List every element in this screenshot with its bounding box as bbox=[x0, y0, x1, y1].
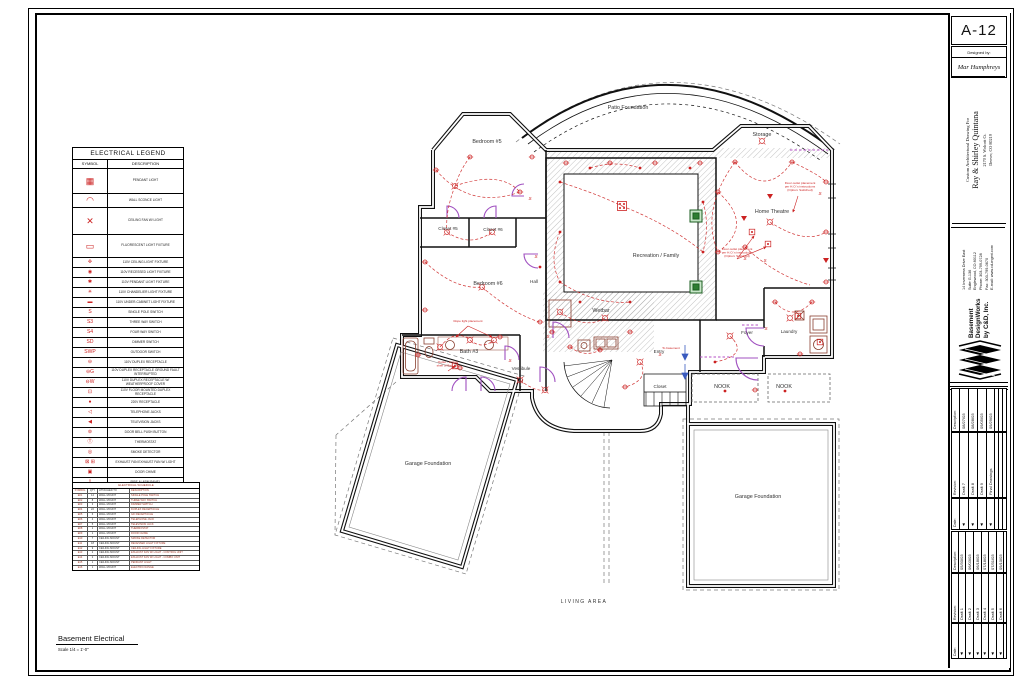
annotation-text: Floor outlet placementper H.O.'s instruc… bbox=[785, 181, 816, 192]
revision-entry: 07/31/03 bbox=[989, 532, 997, 572]
schedule-cell: WALL MOUNT bbox=[98, 513, 130, 517]
wire-run bbox=[770, 222, 826, 237]
legend-symbol-icon: ⊖W bbox=[73, 378, 108, 387]
room-label: Bath #3 bbox=[460, 349, 479, 355]
company-address-block: 14 Inverness Drive EastSuite G-136Englew… bbox=[953, 230, 1005, 290]
symbol-rc bbox=[537, 320, 543, 324]
legend-row: S3THREE WAY SWITCH bbox=[73, 318, 183, 328]
designer-name: Mar Humphreys bbox=[951, 57, 1007, 78]
wire-run bbox=[560, 182, 622, 206]
room-label: Wetbar bbox=[592, 308, 609, 314]
symbol-rl bbox=[784, 390, 787, 393]
schedule-cell: CEILING MOUNT bbox=[98, 542, 130, 546]
schedule-cell: 2 bbox=[88, 556, 98, 560]
schedule-cell: E08 bbox=[73, 527, 88, 531]
door-swing bbox=[484, 206, 496, 218]
revision-entry: Draft 8 bbox=[969, 433, 978, 497]
legend-symbol-icon: S bbox=[73, 308, 108, 317]
recessed-light-icon bbox=[539, 266, 542, 269]
legend-symbol-icon: ▭ bbox=[73, 235, 108, 257]
sheet-number: A-12 bbox=[951, 16, 1007, 45]
ceiling-light-icon bbox=[760, 139, 765, 144]
revision-entry: ◄ bbox=[982, 624, 990, 658]
revision-entry: Draft 1 bbox=[959, 574, 967, 622]
jack-icon bbox=[823, 258, 829, 263]
schedule-col-header: SYMBOL bbox=[73, 489, 88, 493]
symbol-rc bbox=[467, 155, 473, 159]
drawing-scale: Scale 1/4 = 1'-0" bbox=[56, 647, 216, 652]
legend-row: ◠WALL SCONCE LIGHT bbox=[73, 194, 183, 208]
revision-entry: ◄ bbox=[960, 499, 969, 529]
legend-description: 110V DUPLEX RECEPTACLE GROUND FAULT INTE… bbox=[108, 368, 183, 377]
schedule-cell: WALL MOUNT bbox=[98, 518, 130, 522]
schedule-cell: PENDANT LIGHT bbox=[130, 561, 199, 565]
electrical-legend: ELECTRICAL LEGEND SYMBOL DESCRIPTION ▦PE… bbox=[72, 147, 184, 498]
symbol-sw: S bbox=[546, 334, 549, 339]
legend-description: DOOR BELL PUSH BUTTON bbox=[108, 428, 183, 437]
revision-entry: ◄ bbox=[966, 624, 974, 658]
symbol-sw: S bbox=[763, 258, 766, 263]
legend-description: 110V UNDER-CABINET LIGHT FIXTURE bbox=[108, 298, 183, 307]
schedule-cell: RECESSED LIGHT FIXTURE bbox=[130, 542, 199, 546]
annotation-text: To basement bbox=[662, 346, 680, 350]
schedule-cell: E04 bbox=[73, 508, 88, 512]
schedule-cell: DIMMER SWITCH bbox=[130, 503, 199, 507]
sheet-page: { "colors":{"electrical_red":"#cc2222","… bbox=[0, 0, 1024, 683]
revision-entry: 09/10/03 bbox=[997, 532, 1005, 572]
room-label: Vestibule bbox=[512, 366, 531, 371]
legend-row: ▬110V UNDER-CABINET LIGHT FIXTURE bbox=[73, 298, 183, 308]
revision-entry: 05/30/03 bbox=[959, 532, 967, 572]
legend-symbol-icon: ◎ bbox=[73, 448, 108, 457]
schedule-cell: E13 bbox=[73, 551, 88, 555]
schedule-cell: 7 bbox=[88, 537, 98, 541]
revision-entry bbox=[1003, 389, 1006, 431]
recessed-light-icon bbox=[784, 390, 787, 393]
legend-symbol-icon: ⊖ bbox=[73, 358, 108, 367]
annotation-text: Outlet - bottomshelf of Bed Cab bbox=[437, 360, 460, 367]
legend-col-description: DESCRIPTION bbox=[108, 160, 183, 168]
legend-row: S4FOUR WAY SWITCH bbox=[73, 328, 183, 338]
door-swing bbox=[540, 367, 555, 382]
company-name-line: DesignWorks bbox=[975, 292, 982, 338]
revision-entry: Draft 6 bbox=[997, 574, 1005, 622]
schedule-cell: WALL MOUNT bbox=[98, 503, 130, 507]
legend-symbol-icon: SD bbox=[73, 338, 108, 347]
schedule-cell: E10 bbox=[73, 537, 88, 541]
symbol-tri bbox=[741, 216, 747, 221]
wire-run bbox=[520, 380, 545, 390]
legend-symbol-icon: ▬ bbox=[73, 298, 108, 307]
legend-row: ▣DOOR CHIME bbox=[73, 468, 183, 478]
symbol-rc bbox=[622, 385, 628, 389]
symbol-rc bbox=[732, 160, 738, 164]
jack-icon bbox=[741, 216, 747, 221]
legend-rows: ▦PENDANT LIGHT◠WALL SCONCE LIGHT✕CEILING… bbox=[73, 169, 183, 497]
legend-description: SMOKE DETECTOR bbox=[108, 448, 183, 457]
revision-band-label: Revision: bbox=[952, 433, 960, 497]
symbol-cl bbox=[759, 138, 766, 145]
schedule-cell: E03 bbox=[73, 503, 88, 507]
schedule-cell: E06 bbox=[73, 518, 88, 522]
legend-symbol-icon: ◀ bbox=[73, 418, 108, 427]
room-label: Garage Foundation bbox=[405, 461, 451, 467]
client-name: Ray & Shirley Quintana bbox=[971, 111, 980, 189]
jack-icon bbox=[767, 194, 773, 199]
company-name-line: Basement bbox=[968, 292, 975, 338]
revision-band-date: Date:◄◄◄◄◄◄ bbox=[951, 623, 1007, 659]
legend-description: FOUR WAY SWITCH bbox=[108, 328, 183, 337]
symbol-rc bbox=[772, 300, 778, 304]
symbol-rc bbox=[422, 260, 428, 264]
legend-row: ◁TELEPHONE JACKS bbox=[73, 408, 183, 418]
revision-entry: 07/18/03 bbox=[982, 532, 990, 572]
schedule-cell: 14 bbox=[88, 494, 98, 498]
schedule-row: E161WALL MOUNTELECTRIC RANGE bbox=[73, 566, 199, 570]
schedule-cell: CEILING LIGHT FIXTURE bbox=[130, 547, 199, 551]
symbol-fx bbox=[749, 229, 755, 235]
switch-icon: S bbox=[534, 254, 537, 259]
schedule-cell: WALL MOUNT bbox=[98, 532, 130, 536]
symbol-fx bbox=[765, 241, 771, 247]
legend-description: 110V CHANDELIER LIGHT FIXTURE bbox=[108, 288, 183, 297]
revision-entry bbox=[1004, 574, 1006, 622]
recessed-light-icon bbox=[559, 281, 562, 284]
legend-symbol-icon: ✳ bbox=[73, 288, 108, 297]
revision-entry: 08/27/03 bbox=[960, 389, 969, 431]
legend-row: ▭FLUORESCENT LIGHT FIXTURE bbox=[73, 235, 183, 258]
room-label: Recreation / Family bbox=[633, 253, 680, 259]
symbol-rc bbox=[752, 388, 758, 392]
schedule-cell: 6 bbox=[88, 513, 98, 517]
schedule-cell: 9 bbox=[88, 547, 98, 551]
legend-description: OUTDOOR SWITCH bbox=[108, 348, 183, 357]
recessed-light-icon bbox=[702, 251, 705, 254]
legend-row: ✱110V PENDANT LIGHT FIXTURE bbox=[73, 278, 183, 288]
legend-symbol-icon: ✜ bbox=[73, 258, 108, 267]
symbol-rl bbox=[559, 231, 562, 234]
symbol-tri bbox=[823, 258, 829, 263]
schedule-cell: E01 bbox=[73, 494, 88, 498]
legend-description: 110V DUPLEX RECEPTACLE bbox=[108, 358, 183, 367]
legend-description: 110V PENDANT LIGHT FIXTURE bbox=[108, 278, 183, 287]
wire-run bbox=[745, 247, 810, 285]
recessed-light-icon bbox=[689, 167, 692, 170]
room-label: Bedroom #6 bbox=[473, 281, 502, 287]
room-label: Closet #6 bbox=[483, 227, 503, 232]
switch-icon: S bbox=[763, 258, 766, 263]
revision-entry: Draft 9 bbox=[978, 433, 987, 497]
room-label: Home Theatre bbox=[755, 209, 789, 215]
legend-row: ⊠ ⊞EXHAUST FAN EXHAUST FAN W/ LIGHT bbox=[73, 458, 183, 468]
company-name-line: by C&D, Inc. bbox=[983, 292, 990, 338]
legend-row: ✳110V CHANDELIER LIGHT FIXTURE bbox=[73, 288, 183, 298]
legend-row: ⊖110V DUPLEX RECEPTACLE bbox=[73, 358, 183, 368]
legend-description: THERMOSTAT bbox=[108, 438, 183, 447]
wire-run bbox=[792, 162, 826, 182]
legend-row: SSINGLE POLE SWITCH bbox=[73, 308, 183, 318]
legend-row: ◉110V RECESSED LIGHT FIXTURE bbox=[73, 268, 183, 278]
schedule-cell: 22 bbox=[88, 508, 98, 512]
switch-icon: S bbox=[764, 326, 767, 331]
revision-entry: ◄ bbox=[989, 624, 997, 658]
schedule-cell: WALL MOUNT bbox=[98, 523, 130, 527]
client-line1: Custom Architectural Drawing For bbox=[965, 118, 970, 182]
schedule-cell: E15 bbox=[73, 561, 88, 565]
legend-symbol-icon: ⊖G bbox=[73, 368, 108, 377]
revision-entry bbox=[1004, 532, 1006, 572]
legend-row: ⊚DOOR BELL PUSH BUTTON bbox=[73, 428, 183, 438]
recessed-light-icon bbox=[559, 181, 562, 184]
wire-run bbox=[625, 362, 643, 387]
legend-symbol-icon: ◉ bbox=[73, 268, 108, 277]
schedule-col-header: QTY bbox=[88, 489, 98, 493]
schedule-cell: 8 bbox=[88, 499, 98, 503]
door-swing bbox=[452, 377, 466, 391]
schedule-cell: THREE WAY SWITCH bbox=[130, 499, 199, 503]
symbol-sw: S bbox=[818, 191, 821, 196]
schedule-cell: E16 bbox=[73, 566, 88, 570]
symbol-cl bbox=[787, 315, 794, 322]
schedule-cell: TELEVISION JACK bbox=[130, 523, 199, 527]
legend-description: CEILING FAN W/ LIGHT bbox=[108, 208, 183, 234]
schedule-cell: ELECTRIC RANGE bbox=[130, 566, 199, 570]
schedule-cell: DOOR CHIME bbox=[130, 532, 199, 536]
annotation-arrow bbox=[793, 196, 798, 212]
symbol-rl bbox=[639, 167, 642, 170]
legend-row: ⊖G110V DUPLEX RECEPTACLE GROUND FAULT IN… bbox=[73, 368, 183, 378]
legend-row: ⊖W110V DUPLEX RECEPTACLE W/ WEATHERPROOF… bbox=[73, 378, 183, 388]
symbol-rl bbox=[714, 361, 717, 364]
revision-entry: ◄ bbox=[997, 624, 1005, 658]
legend-description: SINGLE POLE SWITCH bbox=[108, 308, 183, 317]
symbol-tri bbox=[767, 194, 773, 199]
legend-row: ⓉTHERMOSTAT bbox=[73, 438, 183, 448]
legend-column-headers: SYMBOL DESCRIPTION bbox=[73, 160, 183, 169]
revision-entry: Draft 7 bbox=[960, 433, 969, 497]
revision-entry: Draft 5 bbox=[989, 574, 997, 622]
symbol-sw: S bbox=[534, 254, 537, 259]
schedule-col-header: ATTACHED TO bbox=[98, 489, 130, 493]
revision-band-label: Description: bbox=[952, 389, 960, 431]
schedule-cell: CEILING MOUNT bbox=[98, 547, 130, 551]
company-name-block: BasementDesignWorksby C&D, Inc. bbox=[953, 292, 1005, 338]
revision-entry: 08/28/03 bbox=[969, 389, 978, 431]
legend-description: 220V RECEPTACLE bbox=[108, 398, 183, 407]
wire-run bbox=[775, 302, 812, 312]
legend-row: SWPOUTDOOR SWITCH bbox=[73, 348, 183, 358]
wire-run bbox=[455, 157, 470, 186]
legend-row: ●220V RECEPTACLE bbox=[73, 398, 183, 408]
schedule-cell: CEILING MOUNT bbox=[98, 556, 130, 560]
legend-symbol-icon: ◁ bbox=[73, 408, 108, 417]
revision-entry: ◄ bbox=[969, 499, 978, 529]
annotation-text: Rope light placement bbox=[453, 319, 482, 323]
schedule-cell: 1 bbox=[88, 532, 98, 536]
revision-entry: Draft 4 bbox=[982, 574, 990, 622]
legend-description: 110V CEILING LIGHT FIXTURE bbox=[108, 258, 183, 267]
legend-symbol-icon: ▦ bbox=[73, 169, 108, 193]
schedule-cell: 4 bbox=[88, 518, 98, 522]
electrical-schedule: ELECTRICAL SCHEDULE SYMBOLQTYATTACHED TO… bbox=[72, 482, 200, 571]
recessed-light-icon bbox=[589, 167, 592, 170]
schedule-cell: TELEPHONE JACK bbox=[130, 518, 199, 522]
wire-run bbox=[735, 162, 792, 181]
drawing-title: Basement Electrical bbox=[56, 634, 138, 645]
legend-row: SDDIMMER SWITCH bbox=[73, 338, 183, 348]
schedule-cell: CEILING MOUNT bbox=[98, 551, 130, 555]
revision-entry: 06/18/03 bbox=[974, 532, 982, 572]
schedule-cell: 1 bbox=[88, 561, 98, 565]
schedule-cell: EXHAUST FAN W/ LIGHT - CONTROL UNIT bbox=[130, 551, 199, 555]
schedule-cell: 5 bbox=[88, 523, 98, 527]
schedule-cell: E11 bbox=[73, 542, 88, 546]
switch-icon: S bbox=[508, 358, 511, 363]
room-label: LIVING AREA bbox=[561, 599, 608, 605]
symbol-rl bbox=[702, 251, 705, 254]
legend-symbol-icon: ● bbox=[73, 398, 108, 407]
revision-band-desc: Description:05/30/0306/03/0306/18/0307/1… bbox=[951, 531, 1007, 573]
revision-band-label: Description: bbox=[952, 532, 959, 572]
schedule-cell: E05 bbox=[73, 513, 88, 517]
schedule-cell: DUPLEX RECEPTACLE bbox=[130, 508, 199, 512]
wire-run bbox=[718, 192, 737, 252]
revision-band-desc: Description:08/27/0308/28/0309/05/0309/2… bbox=[951, 388, 1007, 432]
legend-symbol-icon: ⊠ ⊞ bbox=[73, 458, 108, 467]
revision-entry bbox=[1003, 499, 1006, 529]
schedule-cell: 3 bbox=[88, 503, 98, 507]
ceiling-light-icon bbox=[788, 316, 793, 321]
symbol-rc bbox=[422, 308, 428, 312]
schedule-cell: SINGLE POLE SWITCH bbox=[130, 494, 199, 498]
revision-band-label: Date: bbox=[952, 624, 959, 658]
legend-description: DOOR CHIME bbox=[108, 468, 183, 477]
schedule-cell: WALL MOUNT bbox=[98, 527, 130, 531]
drawing-title-block: Basement Electrical Scale 1/4 = 1'-0" bbox=[56, 628, 216, 652]
revision-entry: 09/29/03 bbox=[987, 389, 996, 431]
schedule-cell: CEILING MOUNT bbox=[98, 561, 130, 565]
schedule-cell: E09 bbox=[73, 532, 88, 536]
schedule-cell: EXHAUST FAN W/ LIGHT - COMBO UNIT bbox=[130, 556, 199, 560]
revision-band-label: Revision: bbox=[952, 574, 959, 622]
room-label: Storage bbox=[753, 132, 772, 138]
legend-row: ◀TELEVISION JACKS bbox=[73, 418, 183, 428]
room-label: Bedroom #5 bbox=[472, 139, 501, 145]
legend-description: TELEPHONE JACKS bbox=[108, 408, 183, 417]
revision-band-rev: Revision:Draft 1Draft 2Draft 3Draft 4Dra… bbox=[951, 573, 1007, 623]
legend-row: ✕CEILING FAN W/ LIGHT bbox=[73, 208, 183, 235]
legend-description: 110V FLOOR MOUNTED DUPLEX RECEPTACLE bbox=[108, 388, 183, 397]
symbol-rl bbox=[539, 266, 542, 269]
room-label: Hall bbox=[530, 279, 538, 284]
recessed-light-icon bbox=[629, 301, 632, 304]
recessed-light-icon bbox=[579, 301, 582, 304]
recessed-light-icon bbox=[702, 201, 705, 204]
schedule-cell: CEILING MOUNT bbox=[98, 537, 130, 541]
revision-entry: Draft 2 bbox=[966, 574, 974, 622]
revision-entry: ◄ bbox=[987, 499, 996, 529]
recessed-light-icon bbox=[714, 361, 717, 364]
schedule-cell: WALL MOUNT bbox=[98, 499, 130, 503]
revision-entry: ◄ bbox=[974, 624, 982, 658]
divider-line bbox=[948, 386, 1008, 387]
recessed-light-icon bbox=[559, 231, 562, 234]
schedule-col-header: DESCRIPTION bbox=[130, 489, 199, 493]
room-label: Garage Foundation bbox=[735, 494, 781, 500]
legend-description: DIMMER SWITCH bbox=[108, 338, 183, 347]
symbol-rc bbox=[529, 155, 535, 159]
schedule-rows: E0114WALL MOUNTSINGLE POLE SWITCHE028WAL… bbox=[73, 494, 199, 570]
schedule-cell: WALL MOUNT bbox=[98, 508, 130, 512]
legend-symbol-icon: S3 bbox=[73, 318, 108, 327]
company-address-line: E-mail: www.cd-mgmt.com bbox=[990, 230, 996, 290]
room-label: Foyer bbox=[741, 330, 753, 335]
symbol-rc bbox=[823, 280, 829, 284]
revision-entry: Final Drawings bbox=[987, 433, 996, 497]
revision-entry: Draft 3 bbox=[974, 574, 982, 622]
schedule-cell: E14 bbox=[73, 556, 88, 560]
symbol-sw: S bbox=[528, 196, 531, 201]
legend-symbol-icon: Ⓣ bbox=[73, 438, 108, 447]
legend-title: ELECTRICAL LEGEND bbox=[73, 148, 183, 160]
entry-blue-arrows bbox=[682, 345, 688, 379]
legend-description: 110V DUPLEX RECEPTACLE W/ WEATHERPROOF C… bbox=[108, 378, 183, 387]
client-block: Custom Architectural Drawing For Ray & S… bbox=[952, 77, 1006, 224]
wire-run bbox=[455, 179, 520, 192]
switch-icon: S bbox=[546, 334, 549, 339]
revision-entry: ◄ bbox=[978, 499, 987, 529]
door-swing bbox=[736, 358, 758, 380]
annotation-text: Floor outlet placementper H.O.'s instruc… bbox=[722, 247, 753, 258]
schedule-cell: 2 bbox=[88, 551, 98, 555]
revision-entry bbox=[1004, 624, 1006, 658]
legend-description: FLUORESCENT LIGHT FIXTURE bbox=[108, 235, 183, 257]
room-label: Patio Foundation bbox=[608, 105, 649, 111]
revision-entry: ◄ bbox=[959, 624, 967, 658]
symbol-rl bbox=[689, 167, 692, 170]
revision-band-date: Date:◄◄◄◄ bbox=[951, 498, 1007, 530]
hatched-areas bbox=[543, 148, 832, 352]
legend-description: WALL SCONCE LIGHT bbox=[108, 194, 183, 207]
legend-description: TELEVISION JACKS bbox=[108, 418, 183, 427]
symbol-rl bbox=[724, 390, 727, 393]
room-label: Laundry bbox=[781, 329, 798, 334]
nook-dashed-boxes bbox=[692, 374, 830, 402]
symbol-rc bbox=[809, 300, 815, 304]
company-logo bbox=[955, 340, 1005, 380]
symbol-rl bbox=[589, 167, 592, 170]
revision-band-label: Date: bbox=[952, 499, 960, 529]
symbol-sw: S bbox=[764, 326, 767, 331]
recessed-light-icon bbox=[724, 390, 727, 393]
schedule-cell: GFI RECEPTACLE bbox=[130, 513, 199, 517]
legend-symbol-icon: ◠ bbox=[73, 194, 108, 207]
legend-row: ◎SMOKE DETECTOR bbox=[73, 448, 183, 458]
revision-entry bbox=[1003, 433, 1006, 497]
divider-line bbox=[948, 382, 1008, 383]
symbol-rc bbox=[823, 180, 829, 184]
room-label: Closet bbox=[653, 384, 667, 389]
room-label: NOOK bbox=[714, 384, 730, 390]
symbol-rl bbox=[579, 301, 582, 304]
legend-description: THREE WAY SWITCH bbox=[108, 318, 183, 327]
schedule-cell: 1 bbox=[88, 527, 98, 531]
door-swing bbox=[505, 346, 519, 360]
symbol-rl bbox=[702, 201, 705, 204]
legend-symbol-icon: ⊚ bbox=[73, 428, 108, 437]
symbol-rc bbox=[517, 190, 523, 194]
schedule-cell: E07 bbox=[73, 523, 88, 527]
